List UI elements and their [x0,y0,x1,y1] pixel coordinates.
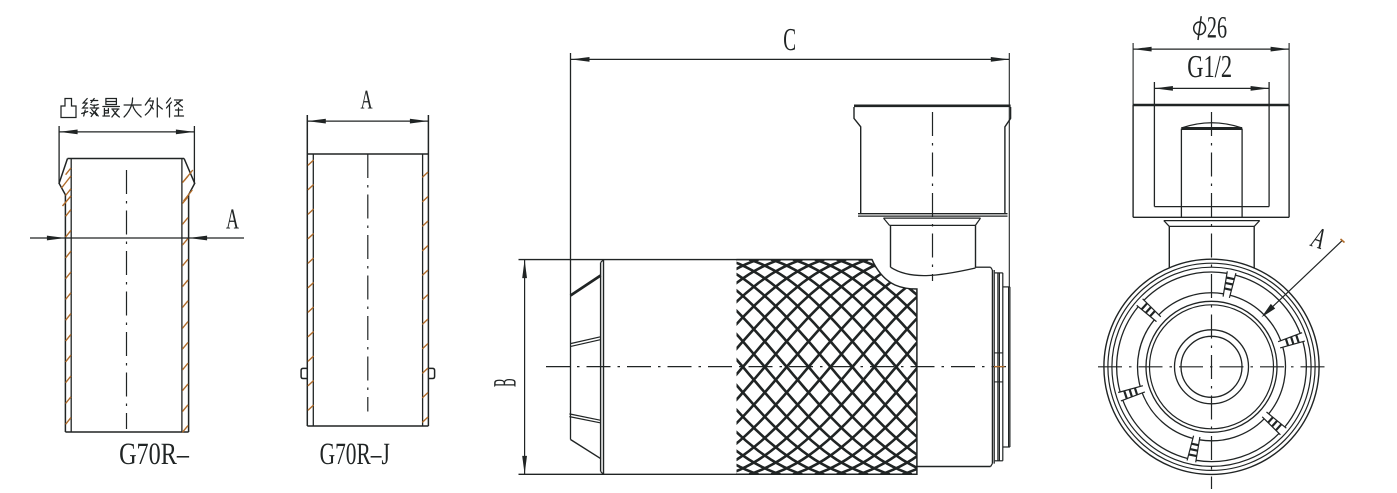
svg-text:C: C [783,21,796,57]
svg-text:B: B [488,378,524,387]
svg-text:A: A [226,204,239,236]
svg-text:G1/2: G1/2 [1187,48,1232,84]
svg-text:G70R–: G70R– [119,436,189,471]
svg-text:26: 26 [1207,9,1227,44]
svg-text:G70R–J: G70R–J [320,436,390,471]
svg-text:A: A [361,85,373,115]
